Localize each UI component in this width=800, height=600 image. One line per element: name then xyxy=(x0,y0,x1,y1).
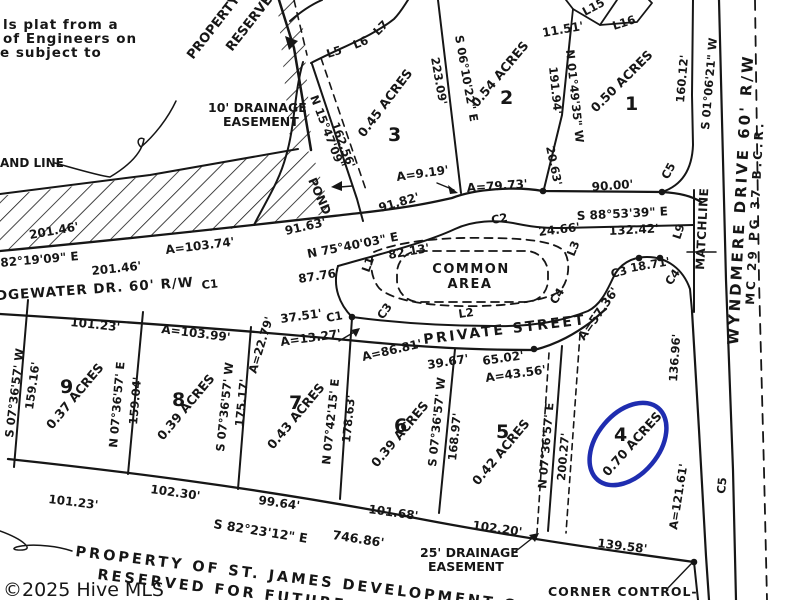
common-area-line1: COMMON xyxy=(432,262,509,277)
plat-map: ls plat from aof Engineers one subject t… xyxy=(0,0,800,600)
curve-c1: C1 xyxy=(201,276,219,292)
drainage-easement-10-line2: EASEMENT xyxy=(223,114,299,129)
dist-9000: 90.00' xyxy=(591,177,634,194)
note-line-3: e subject to xyxy=(0,45,102,61)
drainage-easement-25-line1: 25' DRAINAGE xyxy=(420,545,519,560)
drainage-easement-25-line2: EASEMENT xyxy=(428,559,504,574)
dist-13242: 132.42' xyxy=(608,221,659,238)
curve-c5-bottom: C5 xyxy=(714,477,729,495)
lot1-number: 1 xyxy=(625,93,638,115)
common-area-line2: AREA xyxy=(447,277,492,292)
curve-c1-fork: C1 xyxy=(325,308,344,325)
lot3-number: 3 xyxy=(388,124,401,146)
corner-dot xyxy=(691,559,698,566)
corner-dot xyxy=(540,188,547,195)
corner-dot xyxy=(659,189,666,196)
drainage-easement-10-line1: 10' DRAINAGE xyxy=(208,100,307,115)
corner-dot xyxy=(349,314,356,321)
plat-screenshot: ls plat from aof Engineers one subject t… xyxy=(0,0,800,600)
corner-dot xyxy=(531,346,538,353)
watermark: ©2025 Hive MLS xyxy=(3,579,164,600)
curve-c2: C2 xyxy=(490,210,509,227)
lot2-number: 2 xyxy=(500,87,513,109)
corner-control-label: CORNER CONTROL- xyxy=(548,584,698,599)
land-line-label: AND LINE xyxy=(0,156,64,170)
seg-l2: L2 xyxy=(457,305,474,321)
